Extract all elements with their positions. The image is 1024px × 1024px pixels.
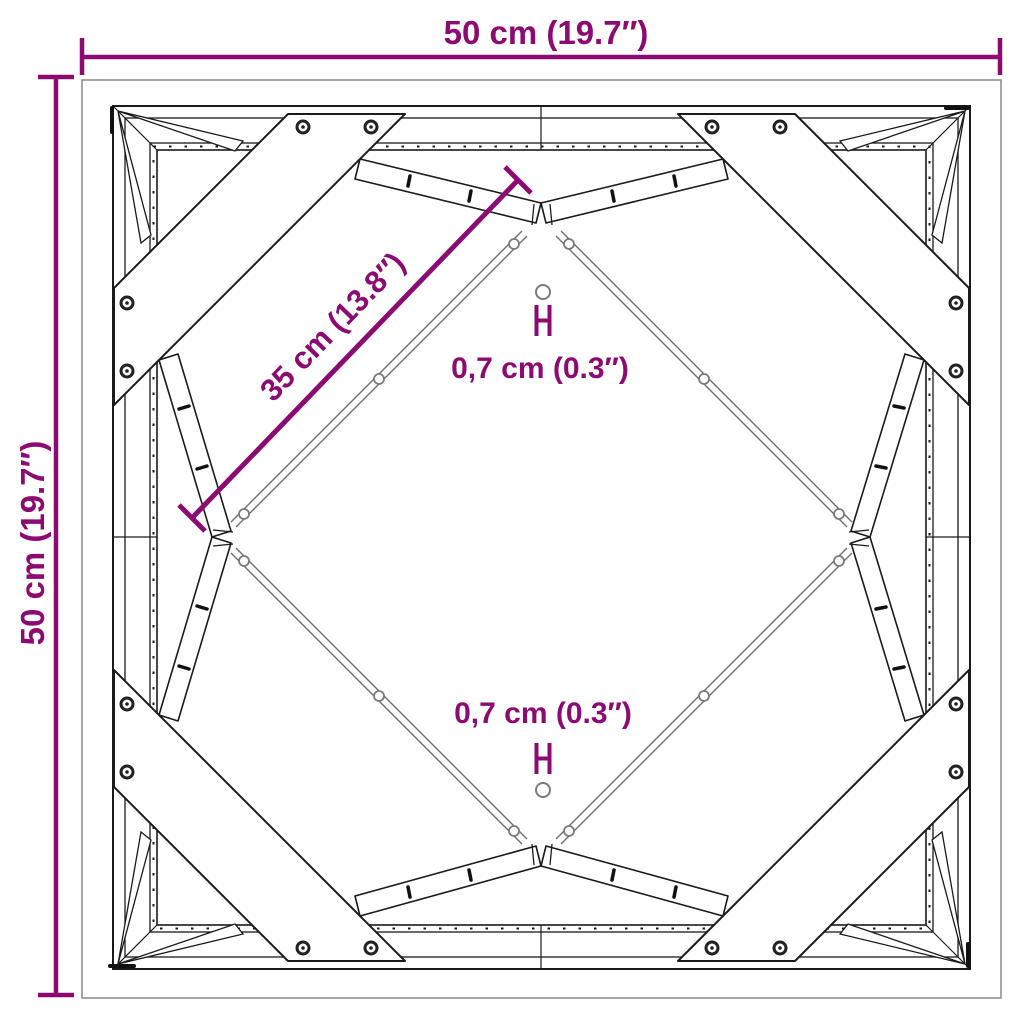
screw-hole-icon bbox=[834, 509, 844, 519]
screw-hole-icon bbox=[239, 509, 249, 519]
annotated-hole-icon bbox=[536, 285, 550, 299]
brace-left-bottom bbox=[159, 537, 231, 721]
dimension-height: 50 cm (19.7″) bbox=[14, 77, 74, 995]
hole-top-label: 0,7 cm (0.3″) bbox=[451, 352, 629, 385]
screw-hole-icon bbox=[699, 374, 709, 384]
screw-hole-icon bbox=[374, 691, 384, 701]
screw-hole-icon bbox=[239, 556, 249, 566]
h-bracket-icon bbox=[537, 305, 550, 336]
flange-bottom-left bbox=[231, 548, 527, 844]
hole-annotation-top: 0,7 cm (0.3″) bbox=[451, 285, 629, 385]
annotated-hole-icon bbox=[536, 783, 550, 797]
flange-bottom-right bbox=[556, 548, 852, 844]
screw-hole-icon bbox=[509, 239, 519, 249]
brace-top-right bbox=[541, 159, 728, 223]
screw-hole-icon bbox=[834, 556, 844, 566]
h-bracket-icon bbox=[537, 743, 550, 774]
brace-bottom-left bbox=[355, 846, 541, 916]
screw-hole-icon bbox=[374, 374, 384, 384]
screw-hole-icon bbox=[564, 239, 574, 249]
height-dimension-label: 50 cm (19.7″) bbox=[14, 441, 51, 646]
cross-brace-strips bbox=[159, 159, 924, 916]
brace-left-top bbox=[159, 354, 231, 537]
rail-fastener-dashes bbox=[154, 147, 930, 929]
screw-hole-icon bbox=[509, 826, 519, 836]
screw-hole-icon bbox=[699, 691, 709, 701]
diagonal-dimension-label: 35 cm (13.8″) bbox=[253, 245, 412, 408]
brace-right-top bbox=[851, 354, 924, 537]
hole-annotation-bottom: 0,7 cm (0.3″) bbox=[454, 697, 632, 797]
table-frame-dimension-diagram: 50 cm (19.7″) 50 cm (19.7″) 35 cm (13.8″… bbox=[0, 0, 1024, 1024]
brace-vertex-joints bbox=[213, 204, 869, 865]
width-dimension-label: 50 cm (19.7″) bbox=[444, 14, 649, 51]
corner-gussets bbox=[114, 114, 969, 961]
brace-right-bottom bbox=[851, 537, 924, 721]
dimension-width: 50 cm (19.7″) bbox=[82, 14, 1000, 75]
brace-bottom-right bbox=[541, 846, 728, 916]
screw-hole-icon bbox=[564, 826, 574, 836]
hole-bottom-label: 0,7 cm (0.3″) bbox=[454, 697, 632, 730]
brace-top-left bbox=[355, 159, 541, 223]
